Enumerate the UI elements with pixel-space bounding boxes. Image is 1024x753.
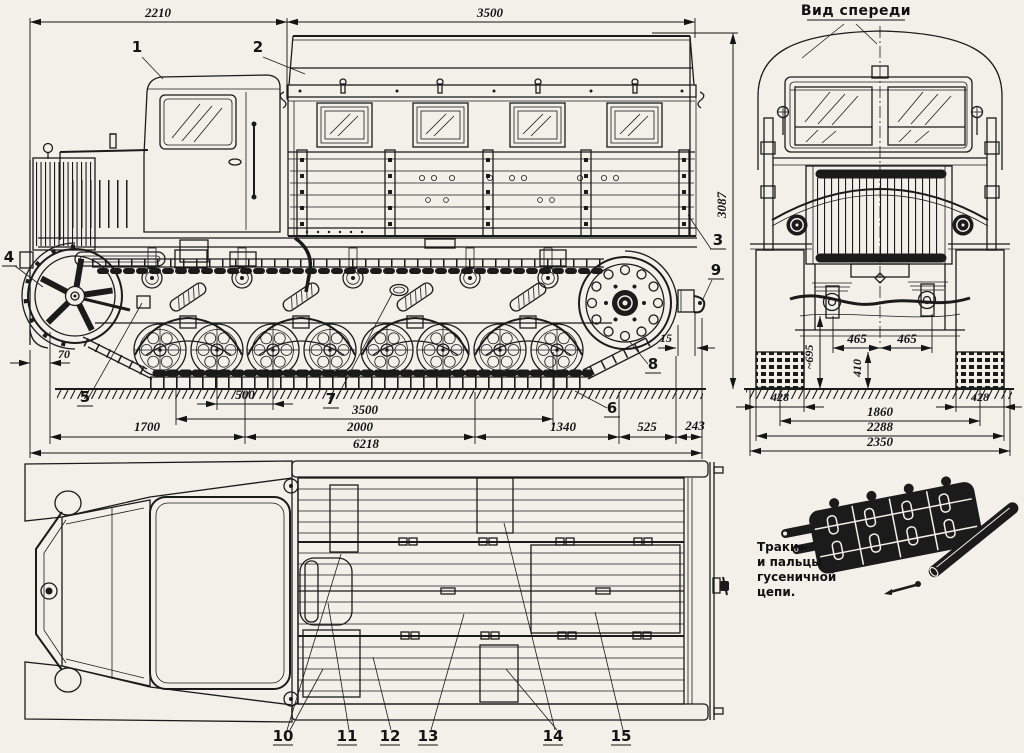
callout-10: 10 (273, 727, 294, 745)
drive-sprocket (579, 257, 671, 349)
dim-front-section: 1700 (134, 419, 161, 434)
front-view-title: Вид спереди (801, 3, 911, 19)
dim-clearance: 410 (850, 359, 864, 378)
callout-13: 13 (418, 727, 439, 745)
rear-hitch (713, 577, 729, 595)
dim-overall-width: 2350 (866, 434, 894, 449)
dim-front-overhang: 70 (58, 347, 70, 361)
dim-body-length: 3500 (476, 5, 504, 20)
dim-overall-height: 3087 (714, 192, 729, 220)
top-view: 10 11 12 13 14 15 (25, 461, 729, 745)
callout-8: 8 (648, 355, 658, 373)
dim-belly-height: ~695 (802, 345, 816, 370)
seat-boxes (303, 478, 518, 702)
caption-pointer-icon: ► (799, 540, 809, 554)
callout-2: 2 (253, 38, 263, 56)
bogies (135, 281, 582, 355)
callout-5: 5 (80, 388, 90, 406)
callout-4: 4 (4, 248, 14, 266)
callout-9: 9 (711, 261, 721, 279)
caption-line-1: Траки (757, 540, 798, 554)
caption-line-2: и пальцы (757, 555, 822, 569)
callout-15: 15 (611, 727, 632, 745)
callout-3: 3 (713, 231, 723, 249)
callout-12: 12 (380, 727, 401, 745)
body-windows (317, 103, 662, 147)
dim-rear-section: 1340 (550, 419, 577, 434)
tow-hook (678, 290, 704, 312)
body-hooks (299, 79, 684, 93)
dim-axle-left: 465 (846, 331, 867, 346)
dim-front-length: 2210 (144, 5, 172, 20)
dim-overall-length: 6218 (353, 436, 380, 451)
callout-7: 7 (326, 390, 336, 408)
callout-11: 11 (337, 727, 358, 745)
dim-body-width: 2288 (866, 419, 894, 434)
dim-track-width-right: 428 (970, 390, 989, 404)
plank-holes (306, 175, 619, 233)
dim-axle-right: 465 (896, 331, 917, 346)
dim-track-centers: 1860 (867, 404, 894, 419)
callout-14: 14 (543, 727, 564, 745)
top-callouts: 10 11 12 13 14 15 (273, 523, 632, 745)
callout-1: 1 (132, 38, 142, 56)
front-view: Вид спереди (736, 3, 1022, 456)
road-wheels (134, 324, 583, 376)
side-view: 2210 3500 3087 (2, 5, 738, 459)
dim-sprocket-gap: 15 (660, 331, 672, 345)
body-stakes (297, 150, 689, 236)
caption-line-4: цепи. (757, 585, 795, 599)
dim-mid-section: 2000 (346, 419, 374, 434)
dim-ground-contact: 3500 (351, 402, 379, 417)
radiator-grille (806, 166, 952, 264)
blueprint-page: 2210 3500 3087 (0, 0, 1024, 753)
pin-bolt (884, 581, 921, 595)
drawing-canvas: 2210 3500 3087 (0, 0, 1024, 753)
dim-hook-overhang: 243 (684, 418, 705, 433)
dim-rear-overhang: 525 (637, 419, 657, 434)
dim-track-width-left: 428 (770, 390, 789, 404)
callout-6: 6 (607, 399, 617, 417)
floor-planks (298, 489, 684, 691)
track-detail-inset: Траки ► и пальцы гусеничной цепи. (757, 472, 1021, 599)
caption-line-3: гусеничной (757, 570, 836, 584)
